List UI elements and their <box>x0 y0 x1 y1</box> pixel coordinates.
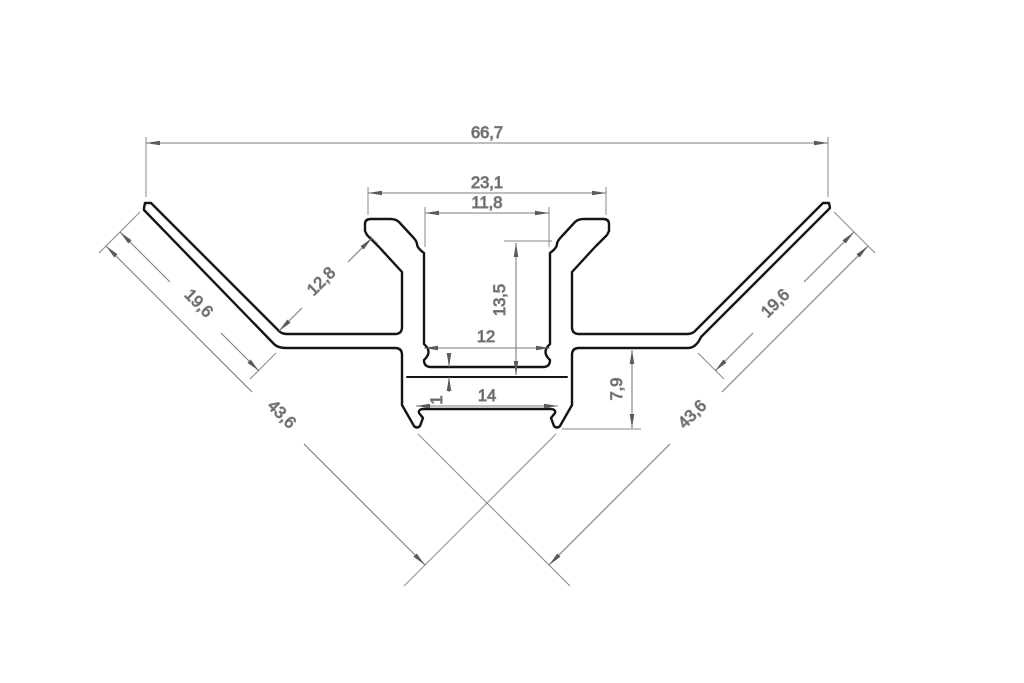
dim-label-cavity-depth: 13,5 <box>491 284 509 316</box>
cad-drawing-canvas: 66,7 23,1 11,8 13,5 12 1 <box>0 0 1024 683</box>
dim-wing-left: 19,6 <box>99 212 276 379</box>
dim-cavity-depth: 13,5 <box>491 241 552 375</box>
dim-diagonal-left: 43,6 <box>106 246 556 586</box>
dim-label-base-drop: 7,9 <box>608 378 626 401</box>
dim-label-wing-right: 19,6 <box>758 286 793 321</box>
dim-label-opening-width: 11,8 <box>472 194 503 212</box>
dim-label-floor-thickness: 1 <box>428 395 446 404</box>
dim-base-drop: 7,9 <box>562 350 641 429</box>
extension-line <box>418 434 570 586</box>
dim-label-overall-width: 66,7 <box>471 124 503 142</box>
dimensions: 66,7 23,1 11,8 13,5 12 1 <box>99 124 875 586</box>
dim-label-hook-reach: 12,8 <box>304 264 339 299</box>
dim-label-hook-span: 23,1 <box>471 174 503 192</box>
dim-label-base-width: 14 <box>478 387 496 405</box>
dim-label-diagonal-right: 43,6 <box>675 397 710 432</box>
dimension-line <box>106 246 425 565</box>
dim-diagonal-right: 43,6 <box>418 246 868 586</box>
dim-cavity-width: 12 <box>424 328 550 350</box>
cad-sheet: 66,7 23,1 11,8 13,5 12 1 <box>0 0 1024 683</box>
dim-label-cavity-width: 12 <box>477 328 495 346</box>
extension-line <box>404 434 556 586</box>
dim-opening-width: 11,8 <box>425 194 549 247</box>
dim-label-wing-left: 19,6 <box>181 286 216 321</box>
dim-label-diagonal-left: 43,6 <box>264 397 299 432</box>
dim-floor-thickness: 1 <box>428 353 451 405</box>
dim-hook-reach: 12,8 <box>279 236 378 331</box>
dimension-line <box>549 246 868 565</box>
dim-wing-right: 19,6 <box>698 212 875 379</box>
arrowhead <box>447 353 452 391</box>
